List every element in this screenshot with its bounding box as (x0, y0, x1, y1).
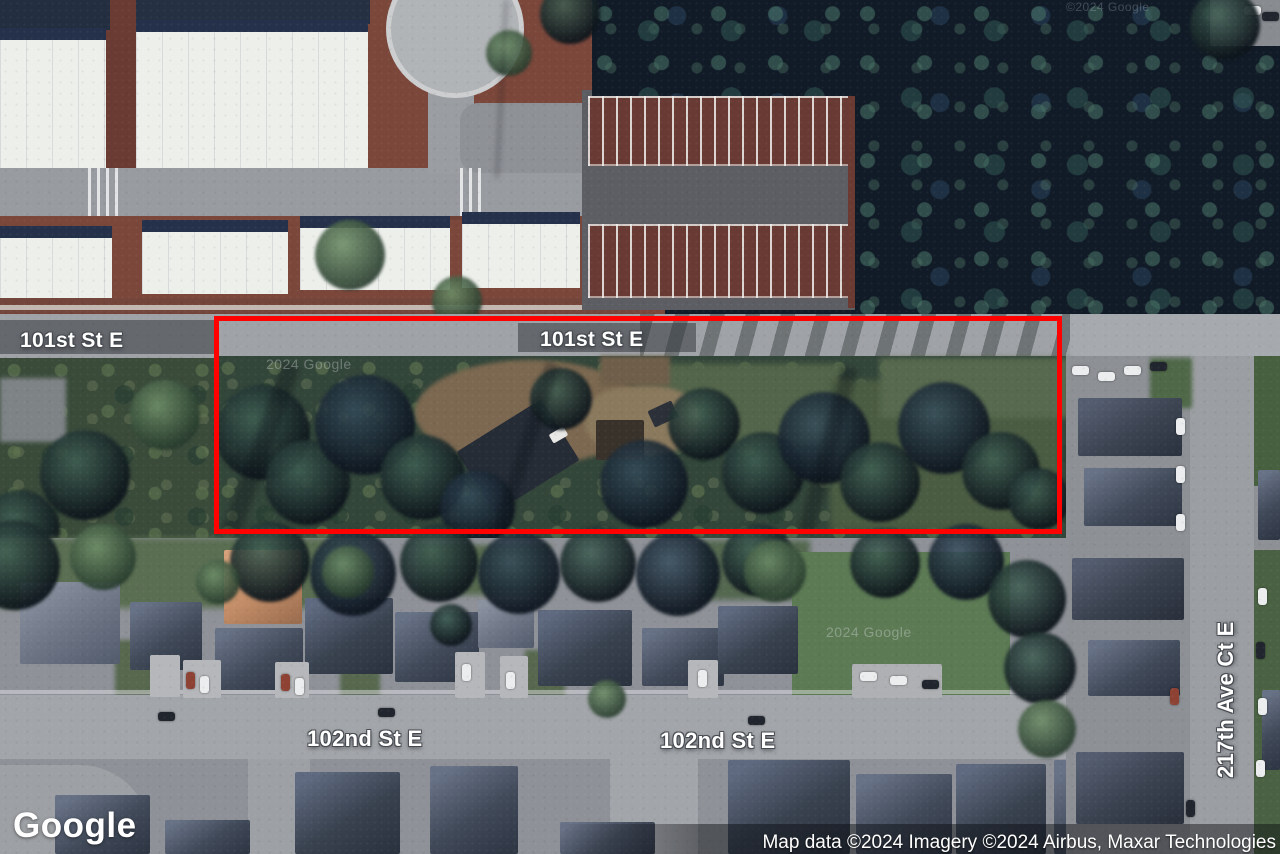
car (1176, 514, 1185, 531)
tree (322, 546, 374, 598)
street-label-102nd-left: 102nd St E (307, 726, 422, 752)
car (1256, 642, 1265, 659)
tree (588, 680, 626, 718)
tree (315, 220, 385, 290)
car (860, 672, 877, 681)
tree (636, 532, 720, 616)
parking-row (588, 224, 872, 298)
car (748, 716, 765, 725)
satellite-map[interactable]: 101st St E 101st St E 102nd St E 102nd S… (0, 0, 1280, 854)
lawn-east (1254, 356, 1280, 486)
building-shadow-band (0, 0, 110, 30)
car (1124, 366, 1141, 375)
house-roof (165, 820, 250, 854)
car (1256, 760, 1265, 777)
tree (486, 30, 532, 76)
parking-connector-road (460, 103, 600, 173)
google-watermark: 2024 Google (826, 624, 912, 640)
car (698, 670, 707, 687)
house-roof (538, 610, 632, 686)
street-label-217th: 217th Ave Ct E (1213, 598, 1239, 778)
car (462, 664, 471, 681)
storage-building (0, 226, 112, 298)
crosswalk (88, 168, 118, 216)
house-roof (1072, 558, 1184, 620)
car (1176, 466, 1185, 483)
tree (988, 560, 1066, 638)
house-roof (718, 606, 798, 674)
car (281, 674, 290, 691)
car (1072, 366, 1089, 375)
car (1186, 800, 1195, 817)
forest (592, 0, 872, 96)
house-roof (1084, 468, 1182, 526)
car (1150, 362, 1167, 371)
street-label-102nd-right: 102nd St E (660, 728, 775, 754)
sidewalk (0, 305, 590, 310)
house-roof (295, 772, 400, 854)
tree (70, 524, 136, 590)
car (1098, 372, 1115, 381)
street-label-101st-left: 101st St E (20, 329, 123, 353)
storage-building (462, 212, 580, 288)
car (295, 678, 304, 695)
street-label-101st-center: 101st St E (540, 328, 643, 352)
tree (850, 528, 920, 598)
tree (1018, 700, 1076, 758)
house-roof (1088, 640, 1180, 696)
car (1258, 588, 1267, 605)
car (1262, 12, 1279, 21)
car (922, 680, 939, 689)
house-roof (1078, 398, 1182, 456)
house-roof (1076, 752, 1184, 824)
tree (230, 522, 310, 602)
map-attribution: Map data ©2024 Imagery ©2024 Airbus, Max… (762, 832, 1276, 854)
car (506, 672, 515, 689)
parking-row (588, 96, 850, 166)
storage-building (142, 220, 288, 294)
tree (430, 604, 472, 646)
tree (40, 430, 130, 520)
tree (400, 524, 478, 602)
tree (560, 526, 636, 602)
house-roof (430, 766, 518, 854)
road-light-east (1070, 314, 1280, 360)
tree (744, 540, 806, 602)
storage-building (0, 28, 106, 170)
storage-building (136, 20, 368, 168)
driveway (150, 655, 180, 697)
google-watermark: ©2024 Google (1066, 0, 1150, 14)
crosswalk (460, 168, 482, 216)
car (158, 712, 175, 721)
car (186, 672, 195, 689)
google-logo[interactable]: Google (13, 806, 137, 846)
car (378, 708, 395, 717)
car (200, 676, 209, 693)
gravel-patch (0, 378, 66, 442)
tree (196, 560, 240, 604)
tree (130, 380, 200, 450)
tree (478, 532, 560, 614)
car (1176, 418, 1185, 435)
house-roof (1258, 470, 1280, 540)
car (1258, 698, 1267, 715)
car (1170, 688, 1179, 705)
car (890, 676, 907, 685)
tree (1004, 632, 1076, 704)
